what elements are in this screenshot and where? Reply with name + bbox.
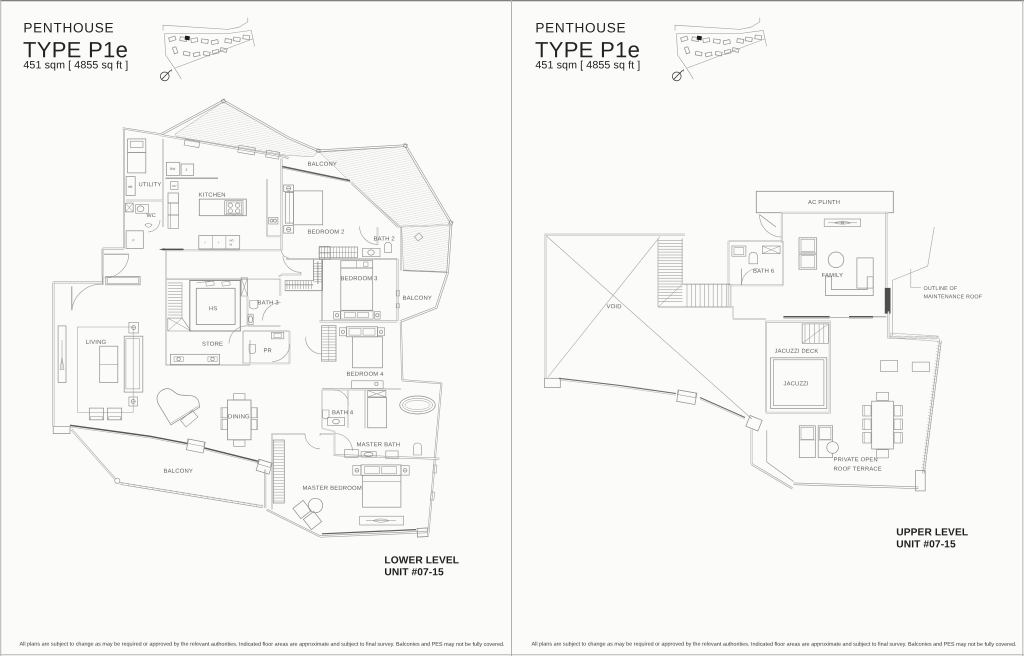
svg-text:UNIT #07-15: UNIT #07-15 <box>384 567 444 578</box>
svg-text:JACUZZI DECK: JACUZZI DECK <box>774 348 818 355</box>
svg-text:All plans are subject to chang: All plans are subject to change as may b… <box>19 642 505 648</box>
svg-text:DINING: DINING <box>228 413 250 420</box>
svg-text:PENTHOUSE: PENTHOUSE <box>23 20 114 35</box>
svg-text:W: W <box>229 243 232 247</box>
svg-text:/: / <box>218 241 219 245</box>
svg-text:MAINTENANCE ROOF: MAINTENANCE ROOF <box>923 294 982 300</box>
svg-text:2: 2 <box>185 168 187 172</box>
svg-text:JACUZZI: JACUZZI <box>783 380 808 387</box>
svg-text:BATH 4: BATH 4 <box>332 409 354 416</box>
svg-text:LIVING: LIVING <box>86 339 107 346</box>
svg-text:/: / <box>204 241 205 245</box>
svg-text:DP: DP <box>172 184 176 188</box>
svg-text:BALCONY: BALCONY <box>402 295 432 302</box>
svg-text:VOID: VOID <box>606 303 621 310</box>
svg-text:HB: HB <box>128 185 132 189</box>
svg-text:F: F <box>132 239 134 243</box>
svg-text:BALCONY: BALCONY <box>163 468 193 475</box>
svg-text:BATH 6: BATH 6 <box>753 268 775 275</box>
svg-text:KITCHEN: KITCHEN <box>198 192 225 199</box>
svg-text:451 sqm [ 4855 sq ft ]: 451 sqm [ 4855 sq ft ] <box>23 59 128 71</box>
svg-text:UNIT #07-15: UNIT #07-15 <box>896 539 956 550</box>
svg-text:AC PLINTH: AC PLINTH <box>808 199 840 206</box>
svg-text:UTILITY: UTILITY <box>138 182 161 188</box>
svg-text:UPPER LEVEL: UPPER LEVEL <box>896 527 968 538</box>
svg-text:BEDROOM 4: BEDROOM 4 <box>346 371 384 378</box>
svg-text:MASTER BEDROOM: MASTER BEDROOM <box>302 485 361 492</box>
svg-text:RW: RW <box>170 167 175 171</box>
svg-text:All plans are subject to chang: All plans are subject to change as may b… <box>531 642 1017 648</box>
svg-text:LOWER LEVEL: LOWER LEVEL <box>384 555 459 566</box>
svg-text:BATH 3: BATH 3 <box>257 299 279 306</box>
svg-text:ROOF TERRACE: ROOF TERRACE <box>833 466 881 473</box>
svg-text:PENTHOUSE: PENTHOUSE <box>535 20 626 35</box>
svg-text:BEDROOM 2: BEDROOM 2 <box>307 229 344 236</box>
svg-text:OUTLINE OF: OUTLINE OF <box>923 286 957 292</box>
svg-text:MASTER BATH: MASTER BATH <box>356 441 400 448</box>
svg-text:HS: HS <box>209 305 217 312</box>
svg-text:BALCONY: BALCONY <box>307 161 337 168</box>
svg-text:PR: PR <box>263 348 271 354</box>
svg-text:WC: WC <box>146 213 155 219</box>
svg-text:BATH 2: BATH 2 <box>373 236 394 243</box>
svg-text:BEDROOM 3: BEDROOM 3 <box>340 275 378 282</box>
svg-text:FAMILY: FAMILY <box>821 272 843 279</box>
svg-text:STORE: STORE <box>202 341 223 348</box>
svg-text:PRIVATE OPEN: PRIVATE OPEN <box>833 456 877 463</box>
svg-text:451 sqm [ 4855 sq ft ]: 451 sqm [ 4855 sq ft ] <box>535 59 640 71</box>
